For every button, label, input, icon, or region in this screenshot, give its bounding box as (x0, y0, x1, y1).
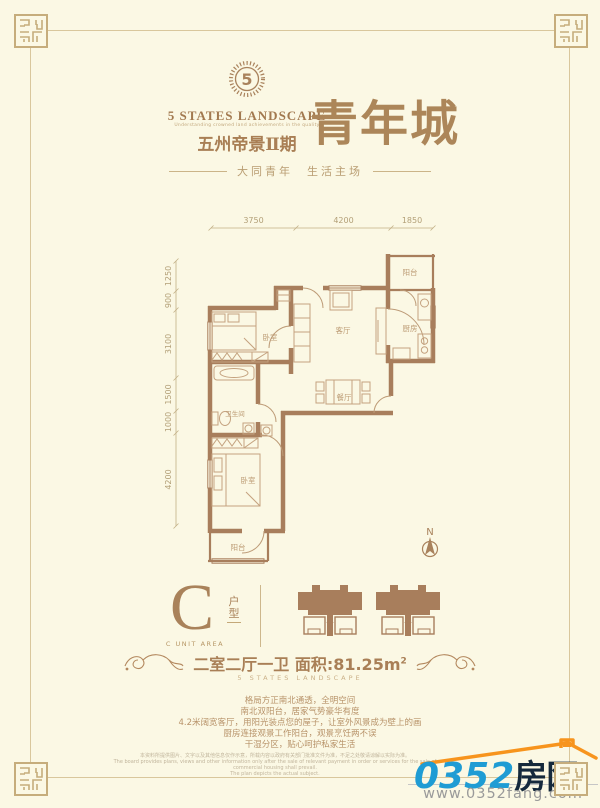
floor-plan: 3750 4200 1850 1250 900 3100 1500 1000 4… (148, 210, 458, 579)
summary-spec: 二室二厅一卫 面积:81.25m2 (193, 651, 407, 675)
svg-text:卫生间: 卫生间 (225, 409, 245, 418)
disclaimer: 本资料所提供图片、文字以及其他信息仅作示意，所载内容以政府有关部门批准文件为准，… (110, 753, 440, 777)
subtitle-text: 大同青年 生活主场 (237, 163, 363, 179)
summary-row: 二室二厅一卫 面积:81.25m2 (90, 650, 510, 676)
svg-text:5: 5 (241, 70, 252, 89)
door-arcs (242, 288, 424, 553)
building-footprints (295, 582, 443, 650)
disclaimer-line: The board provides plans, views and othe… (110, 759, 440, 771)
corner-seal-icon (14, 762, 48, 796)
subtitle-rule-right (373, 171, 431, 172)
svg-text:1850: 1850 (402, 216, 422, 225)
svg-text:3750: 3750 (243, 216, 263, 225)
divider (260, 585, 261, 647)
subtitle-row: 大同青年 生活主场 (150, 163, 450, 179)
svg-text:1250: 1250 (164, 266, 173, 286)
corner-seal-icon (14, 14, 48, 48)
corner-seal-icon (554, 14, 588, 48)
svg-text:1500: 1500 (164, 384, 173, 404)
svg-text:厨房: 厨房 (403, 323, 418, 333)
svg-text:客厅: 客厅 (336, 325, 351, 335)
svg-text:1000: 1000 (164, 412, 173, 432)
flourish-left-icon (123, 650, 185, 676)
svg-text:餐厅: 餐厅 (337, 393, 352, 402)
svg-text:4200: 4200 (164, 469, 173, 489)
svg-text:阳台: 阳台 (231, 542, 246, 552)
description-line: 格局方正南北通透，全明空间 (100, 696, 500, 707)
windows (208, 286, 435, 563)
compass-north-icon: N (423, 527, 438, 557)
svg-text:900: 900 (164, 293, 173, 308)
svg-text:阳台: 阳台 (403, 267, 418, 277)
subtitle-rule-left (169, 171, 227, 172)
svg-text:卧室: 卧室 (241, 475, 256, 485)
svg-text:3100: 3100 (164, 334, 173, 354)
furniture (212, 290, 431, 506)
svg-text:4200: 4200 (333, 216, 353, 225)
disclaimer-line: The plan depicts the actual subject. (110, 771, 440, 777)
dimension-lines (174, 226, 436, 529)
description-line: 南北双阳台，居家气势豪华有度 (100, 707, 500, 718)
corner-seal-icon (554, 762, 588, 796)
unit-type-label: 户型 (227, 596, 241, 623)
svg-text:卧室: 卧室 (263, 332, 278, 342)
flourish-right-icon (415, 650, 477, 676)
brand-seal-icon: 5 (228, 60, 266, 98)
unit-subtitle: C UNIT AREA (145, 640, 245, 648)
svg-text:N: N (426, 527, 433, 538)
summary-brand: 5 STATES LANDSCAPE (150, 674, 450, 682)
building-b (376, 585, 440, 636)
building-a (298, 585, 362, 636)
description-line: 4.2米阔宽客厅，用阳光装点您的屋子，让室外风景成为壁上的画 (100, 718, 500, 729)
unit-letter: C (152, 578, 232, 638)
page-title: 青年城 (302, 84, 468, 154)
